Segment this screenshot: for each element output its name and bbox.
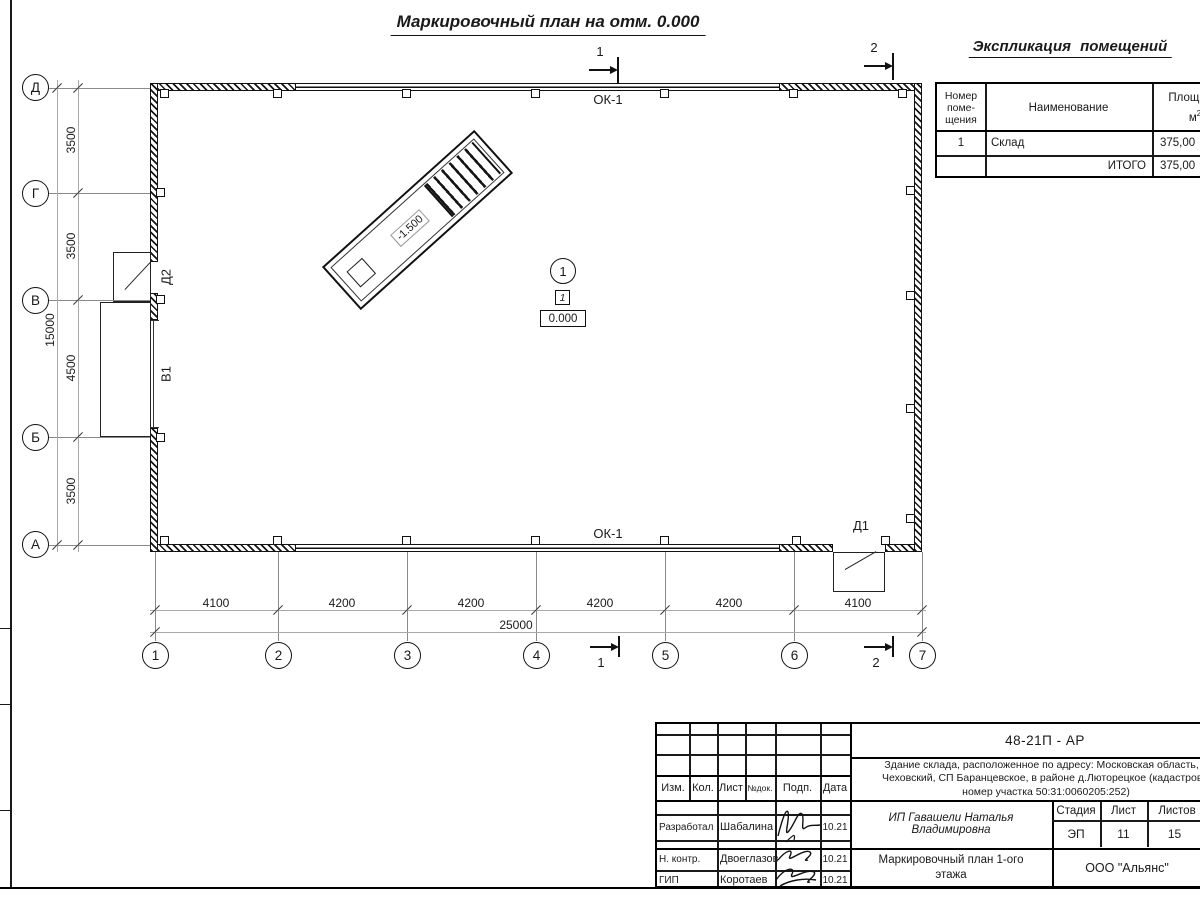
tb-client: ИП Гавашели Наталья Владимировна [850, 800, 1052, 848]
dim-value: 3500 [64, 478, 78, 505]
dim-line-h-total [150, 632, 926, 633]
title-block: Изм. Кол. Лист №док. Подп. Дата Разработ… [655, 722, 1200, 888]
pilaster [660, 89, 669, 98]
tb-grid-line [717, 724, 719, 886]
axis-bubble-2: 2 [265, 642, 292, 669]
pilaster [906, 186, 915, 195]
section-bar [618, 636, 620, 657]
section-arrow [864, 65, 885, 67]
col-header-area: Площадь, м2 [1152, 86, 1200, 130]
section-bar [617, 57, 619, 84]
tb-col-izm: Изм. [657, 776, 689, 799]
filing-mark [0, 704, 11, 705]
filing-mark [0, 628, 11, 629]
pilaster [906, 514, 915, 523]
window-mark-bottom: ОК-1 [593, 526, 622, 541]
axis-bubble-1: 1 [142, 642, 169, 669]
door2-porch [113, 252, 151, 302]
tb-role: Н. контр. [659, 848, 717, 870]
axis-bubble-d: Д [22, 74, 49, 101]
axis-line [794, 552, 795, 641]
pilaster [792, 536, 801, 545]
tb-sheets-label: Листов [1147, 801, 1200, 820]
loading-ramp: -1.500 [322, 130, 513, 310]
door1-mark: Д1 [853, 518, 869, 533]
dim-total-v: 15000 [43, 313, 57, 346]
tb-sheet-label: Лист [1100, 801, 1147, 820]
pilaster [273, 536, 282, 545]
tb-role: ГИП [659, 870, 717, 890]
pilaster [531, 536, 540, 545]
tb-col-ndok: №док. [745, 776, 775, 799]
dim-value: 4100 [845, 596, 872, 610]
tb-col-list: Лист [717, 776, 745, 799]
axis-bubble-4: 4 [523, 642, 550, 669]
section-2-number-top: 2 [870, 40, 877, 55]
tb-name: Двоеглазов [720, 848, 774, 870]
pilaster [906, 291, 915, 300]
pilaster [156, 295, 165, 304]
tb-date: 10.21 [820, 814, 850, 840]
axis-bubble-g: Г [22, 180, 49, 207]
room-row-name: Склад [991, 130, 1111, 155]
tb-stage-value: ЭП [1052, 820, 1100, 848]
dim-value: 4100 [203, 596, 230, 610]
axis-line [922, 552, 923, 641]
dim-total-h: 25000 [499, 618, 532, 632]
axis-line [407, 552, 408, 641]
tb-grid-line [657, 754, 850, 756]
axis-line [155, 552, 156, 641]
pilaster [906, 404, 915, 413]
tb-stage-label: Стадия [1052, 801, 1100, 820]
drawing-sheet: Маркировочный план на отм. 0.000 ОК-1 ОК… [0, 0, 1200, 900]
level-mark: 0.000 [540, 310, 586, 327]
wall-bottom-mid [779, 544, 833, 552]
pilaster [789, 89, 798, 98]
tb-col-data: Дата [820, 776, 850, 799]
sheet-left-border [10, 0, 12, 888]
axis-bubble-3: 3 [394, 642, 421, 669]
room-number-bubble: 1 [550, 258, 576, 284]
section-arrow [589, 69, 610, 71]
pilaster [156, 433, 165, 442]
section-1-number-bottom: 1 [597, 655, 604, 670]
axis-line [536, 552, 537, 641]
pilaster [156, 188, 165, 197]
tb-doc-code: 48-21П - АР [850, 724, 1200, 757]
axis-line [49, 88, 150, 89]
axis-line [49, 193, 150, 194]
dim-line-h-seg [150, 610, 926, 611]
explication-title: Экспликация помещений [969, 38, 1172, 58]
window-mark-top: ОК-1 [593, 92, 622, 107]
pilaster [898, 89, 907, 98]
axis-bubble-a: А [22, 531, 49, 558]
floor-type-mark: 1 [555, 290, 570, 305]
gate-opening-line [153, 320, 154, 428]
door2-mark: Д2 [159, 269, 174, 285]
dim-value: 4200 [329, 596, 356, 610]
col-header-name: Наименование [985, 86, 1152, 130]
tb-company: ООО "Альянс" [1052, 848, 1200, 888]
tb-name: Шабалина [720, 814, 774, 840]
axis-bubble-7: 7 [909, 642, 936, 669]
col-header-number: Номер поме- щения [937, 86, 985, 130]
tb-grid-line [657, 734, 850, 736]
axis-line [665, 552, 666, 641]
pilaster [660, 536, 669, 545]
axis-bubble-5: 5 [652, 642, 679, 669]
pilaster [160, 536, 169, 545]
section-2-number-bottom: 2 [872, 655, 879, 670]
axis-line [278, 552, 279, 641]
dim-line-v-seg [78, 80, 79, 552]
signature-icon [770, 842, 824, 888]
window-band-bottom [296, 544, 779, 552]
dim-value: 4200 [458, 596, 485, 610]
pilaster [160, 89, 169, 98]
tb-name: Коротаев [720, 870, 774, 890]
dim-value: 3500 [64, 127, 78, 154]
section-bar [892, 636, 894, 657]
dim-value: 4500 [64, 355, 78, 382]
room-row-area: 375,00 [1160, 130, 1200, 155]
pilaster [273, 89, 282, 98]
tb-sheet-title: Маркировочный план 1-ого этажа [850, 848, 1052, 888]
dim-line-v-total [57, 80, 58, 552]
tb-sheets-value: 15 [1147, 820, 1200, 848]
tb-col-kol: Кол. [689, 776, 717, 799]
pilaster [881, 536, 890, 545]
section-arrow [864, 646, 885, 648]
pilaster [402, 89, 411, 98]
section-1-number-top: 1 [596, 44, 603, 59]
room-row-number: 1 [937, 130, 985, 155]
axis-bubble-v: В [22, 287, 49, 314]
tb-date: 10.21 [820, 848, 850, 870]
gate-mark: В1 [159, 366, 174, 382]
axis-line [49, 300, 150, 301]
section-bar [892, 53, 894, 80]
total-row-label: ИТОГО [985, 155, 1146, 176]
dim-value: 3500 [64, 233, 78, 260]
wall-left-upper [150, 83, 158, 262]
page-title: Маркировочный план на отм. 0.000 [391, 12, 706, 36]
tb-sheet-value: 11 [1100, 820, 1147, 848]
wall-bottom-left [150, 544, 296, 552]
axis-line [49, 545, 150, 546]
dim-value: 4200 [587, 596, 614, 610]
gate-platform [100, 302, 151, 437]
dim-value: 4200 [716, 596, 743, 610]
axis-line [49, 437, 150, 438]
explication-table: Номер поме- щения Наименование Площадь, … [935, 82, 1200, 178]
axis-bubble-6: 6 [781, 642, 808, 669]
tb-date: 10.21 [820, 870, 850, 890]
pilaster [531, 89, 540, 98]
pilaster [402, 536, 411, 545]
tb-col-podp: Подп. [775, 776, 820, 799]
signature-icon [772, 802, 824, 844]
section-arrow [590, 646, 611, 648]
wall-left-lower [150, 428, 158, 552]
tb-role: Разработал [659, 814, 717, 840]
door1-porch [833, 552, 885, 592]
total-row-area: 375,00 [1160, 155, 1200, 176]
tb-project-address: Здание склада, расположенное по адресу: … [850, 759, 1200, 799]
wall-right [914, 83, 922, 552]
axis-bubble-b: Б [22, 424, 49, 451]
filing-mark [0, 810, 11, 811]
